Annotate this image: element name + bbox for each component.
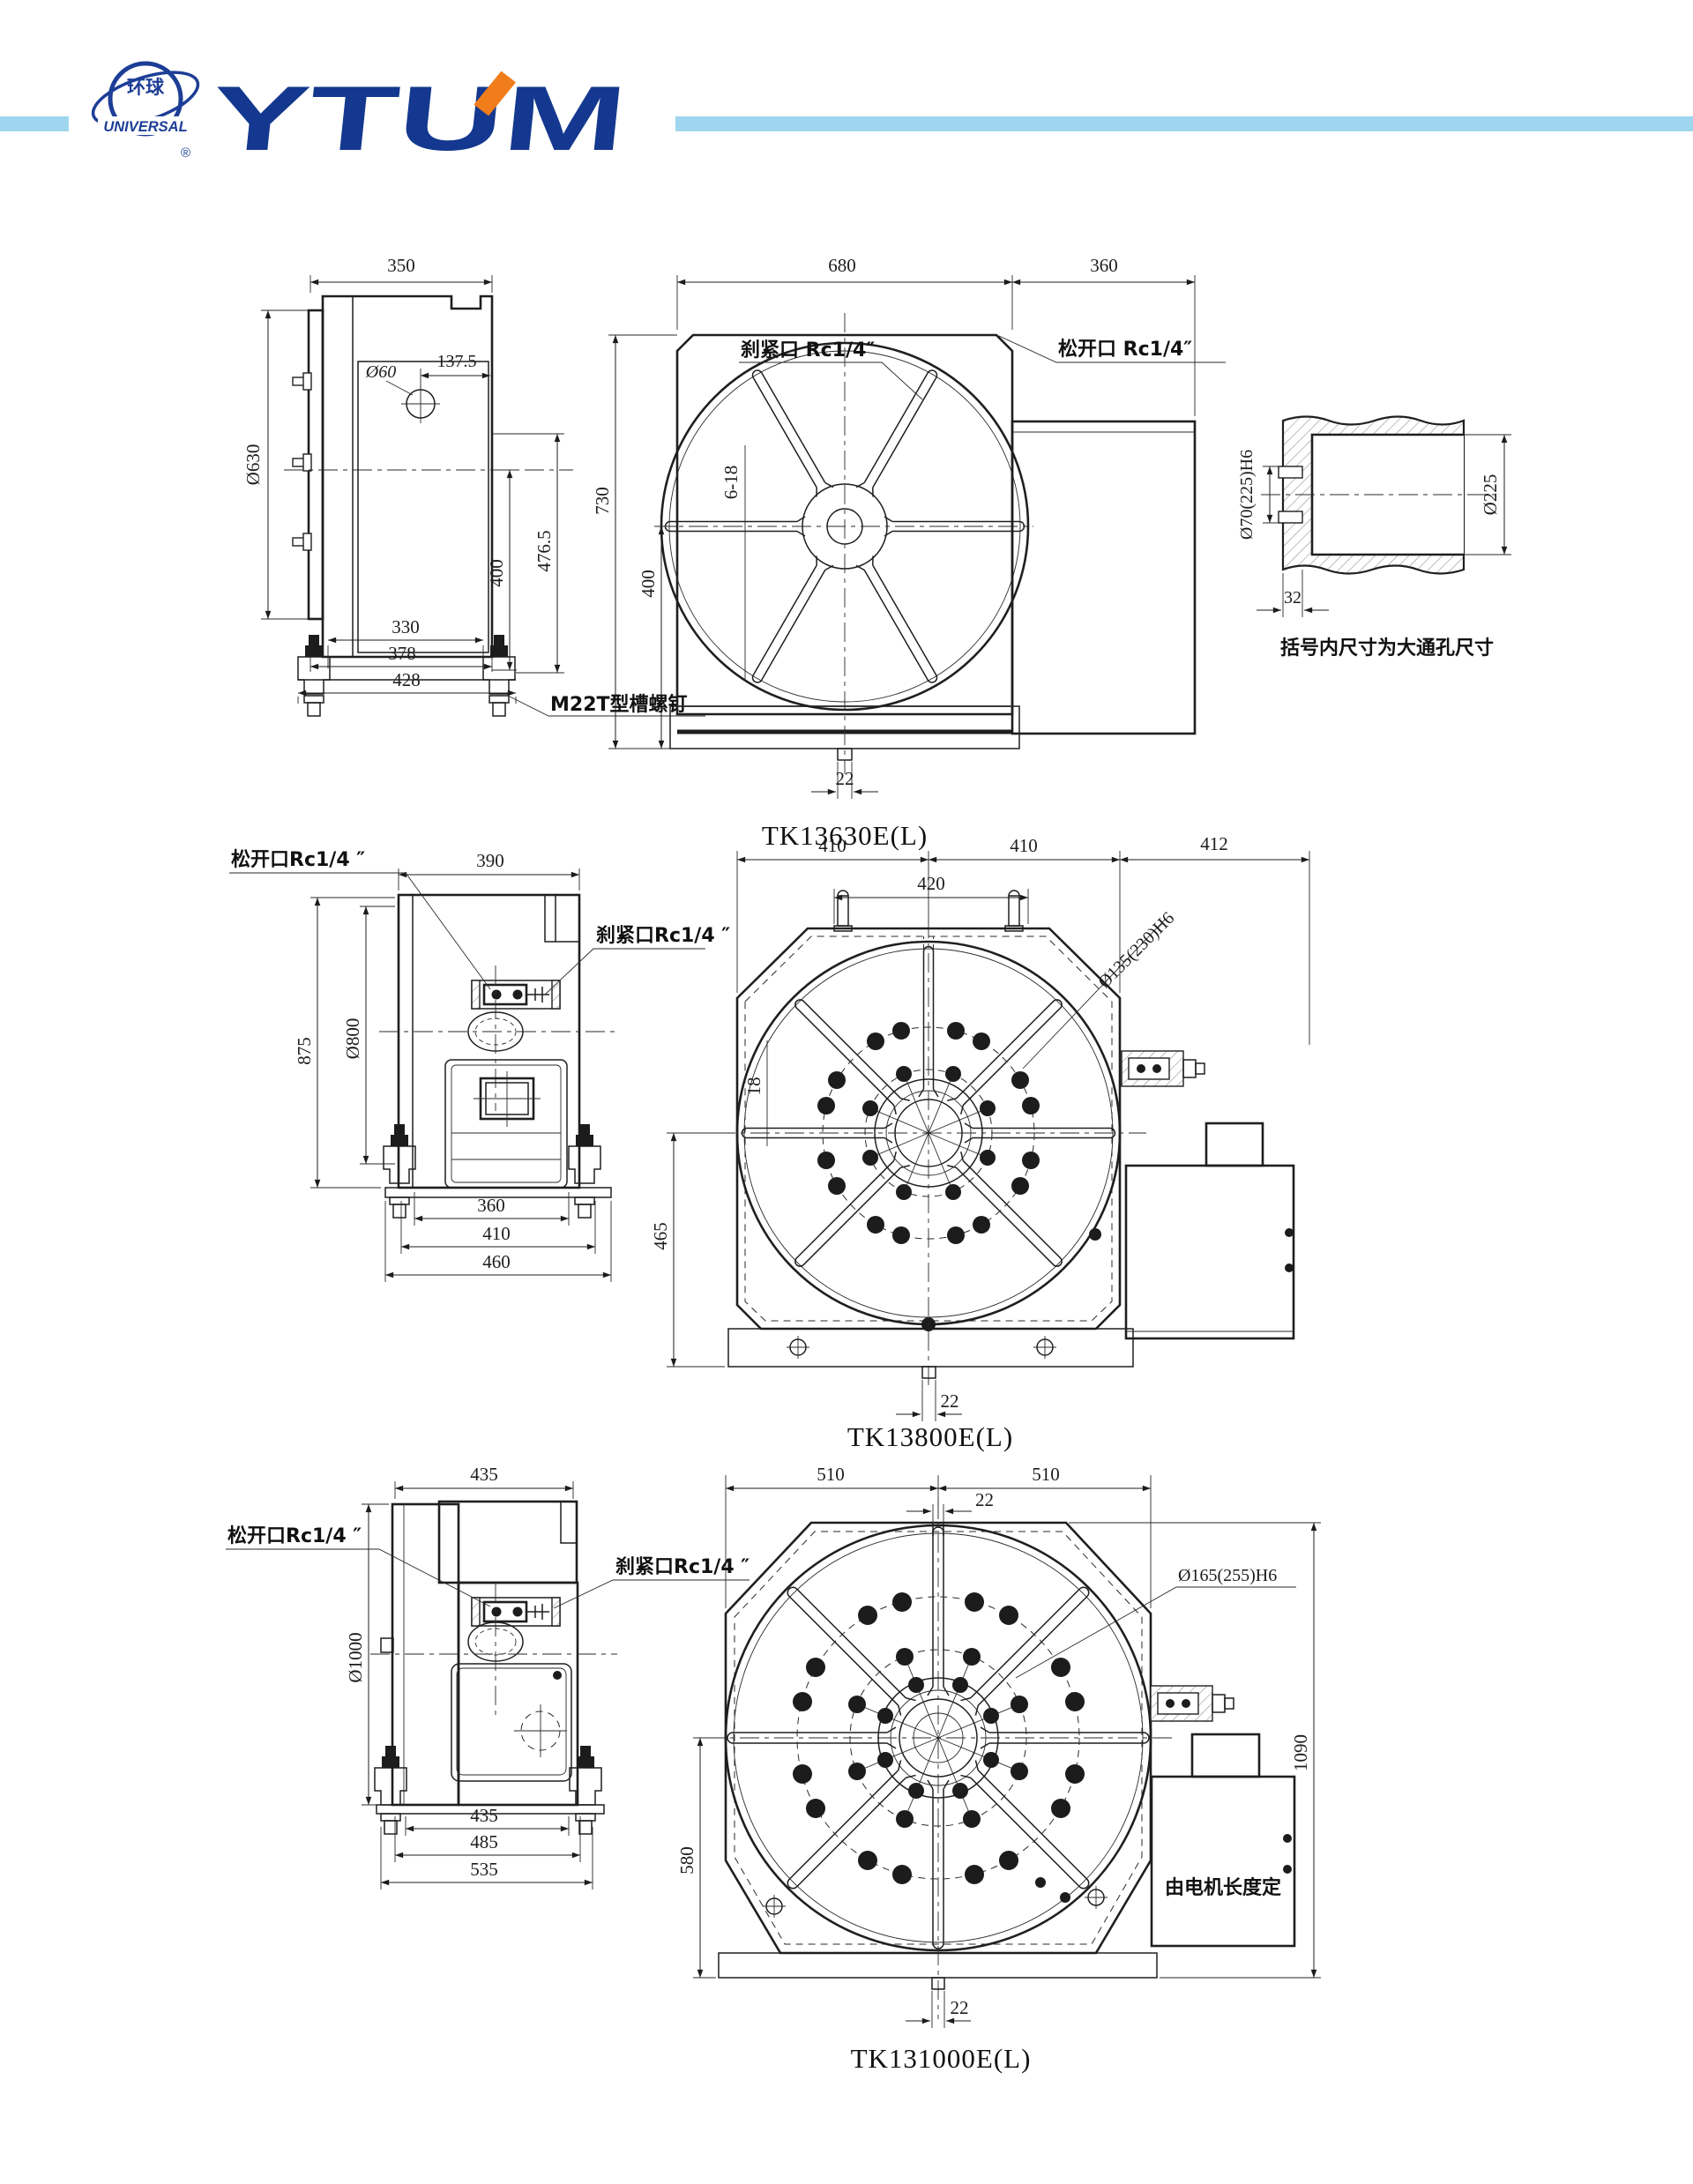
dim-360b: 360 [477, 1195, 505, 1216]
tk13630-front-view: 680 360 730 400 6-18 刹紧口 Rc1/4″ 松开口 Rc1/… [592, 255, 1226, 851]
dim-360: 360 [1090, 255, 1118, 276]
dim-dia630: Ø630 [242, 444, 264, 486]
dim-378: 378 [388, 643, 416, 664]
dim-32: 32 [1284, 588, 1301, 607]
brand-text: YTUM [206, 68, 631, 170]
dim-680: 680 [828, 255, 856, 276]
dim-6-18: 6-18 [720, 466, 742, 500]
dim-420: 420 [917, 873, 945, 894]
dim-410b: 410 [482, 1223, 511, 1244]
dim-bore-135-230: Ø135(230)H6 [1094, 908, 1178, 992]
dim-137-5: 137.5 [437, 352, 477, 371]
dim-400-front: 400 [638, 570, 659, 598]
header-bar-left [0, 116, 69, 131]
tk13800-front-view: 410 410 412 420 18 Ø135(230)H6 465 22 TK… [650, 833, 1309, 1452]
dim-410a: 410 [818, 835, 846, 856]
dim-dia1000: Ø1000 [345, 1632, 366, 1682]
dim-510b: 510 [1032, 1464, 1060, 1485]
catalog-page: 环球 UNIVERSAL ® YTUM 350 Ø630 137.5 Ø60 4… [0, 0, 1693, 2184]
dim-22-3: 22 [951, 1997, 969, 2018]
dim-22-top: 22 [975, 1489, 994, 1510]
dim-22-2: 22 [941, 1390, 959, 1412]
dim-875: 875 [294, 1037, 315, 1065]
dim-22-1: 22 [836, 768, 854, 789]
dim-535: 535 [470, 1859, 498, 1880]
dim-730: 730 [592, 487, 613, 515]
label-brake-port-2: 刹紧口Rc1/4 ″ [596, 925, 730, 947]
dim-410b2: 410 [1010, 835, 1038, 856]
title-tk13800: TK13800E(L) [847, 1421, 1013, 1452]
dim-485: 485 [470, 1831, 498, 1852]
label-release-port-2: 松开口Rc1/4 ″ [231, 849, 365, 871]
dim-350: 350 [387, 255, 415, 276]
label-motor-length: 由电机长度定 [1165, 1876, 1281, 1899]
dim-dia225: Ø225 [1480, 474, 1501, 516]
dim-400-side: 400 [486, 559, 507, 587]
dim-bore60: Ø60 [365, 362, 396, 382]
dim-435b: 435 [470, 1805, 498, 1826]
header-bar-right [675, 116, 1693, 131]
registered-mark: ® [181, 145, 190, 160]
logo-english: UNIVERSAL [103, 119, 187, 135]
universal-globe-logo: 环球 UNIVERSAL ® [87, 62, 205, 160]
dim-580: 580 [676, 1846, 697, 1875]
tk131000-front-view: 由电机长度定 510 510 22 Ø165(255)H6 1090 580 2… [676, 1464, 1321, 2074]
header: 环球 UNIVERSAL ® YTUM [0, 62, 1693, 170]
dim-428: 428 [392, 669, 421, 690]
dim-18: 18 [743, 1077, 764, 1096]
label-brake-port-1: 刹紧口 Rc1/4″ [741, 339, 875, 362]
brand-wordmark: YTUM [206, 68, 631, 170]
tk131000-side-view: 435 Ø1000 松开口Rc1/4 ″ 刹紧口Rc1/4 ″ 435 485 … [226, 1464, 750, 1890]
dim-1090: 1090 [1290, 1734, 1311, 1771]
dim-435: 435 [470, 1464, 498, 1485]
tk13800-side-view: 390 875 Ø800 松开口Rc1/4 ″ 刹紧口Rc1/4 ″ 360 4… [229, 849, 730, 1282]
label-release-port-3: 松开口Rc1/4 ″ [227, 1525, 362, 1547]
dim-bore-165-255: Ø165(255)H6 [1178, 1566, 1277, 1585]
dim-330: 330 [392, 616, 420, 637]
dim-412: 412 [1200, 833, 1228, 854]
dim-510a: 510 [817, 1464, 845, 1485]
dim-bore-70-225: Ø70(225)H6 [1237, 450, 1257, 540]
dim-465: 465 [650, 1222, 671, 1250]
dim-476-5: 476.5 [533, 530, 555, 571]
tk13630-side-view: 350 Ø630 137.5 Ø60 476.5 400 330 378 428… [242, 255, 705, 716]
title-tk131000: TK131000E(L) [851, 2043, 1032, 2074]
label-t-slot-screw: M22T型槽螺钉 [550, 693, 688, 716]
label-brake-port-3: 刹紧口Rc1/4 ″ [615, 1556, 750, 1578]
label-release-port-1: 松开口 Rc1/4″ [1058, 339, 1192, 361]
dim-460b: 460 [482, 1251, 511, 1272]
note-bracket-dims: 括号内尺寸为大通孔尺寸 [1280, 637, 1494, 660]
dim-390: 390 [476, 850, 504, 871]
tk13630-bore-detail: Ø70(225)H6 Ø225 32 括号内尺寸为大通孔尺寸 [1237, 417, 1511, 660]
dim-dia800: Ø800 [342, 1018, 363, 1060]
